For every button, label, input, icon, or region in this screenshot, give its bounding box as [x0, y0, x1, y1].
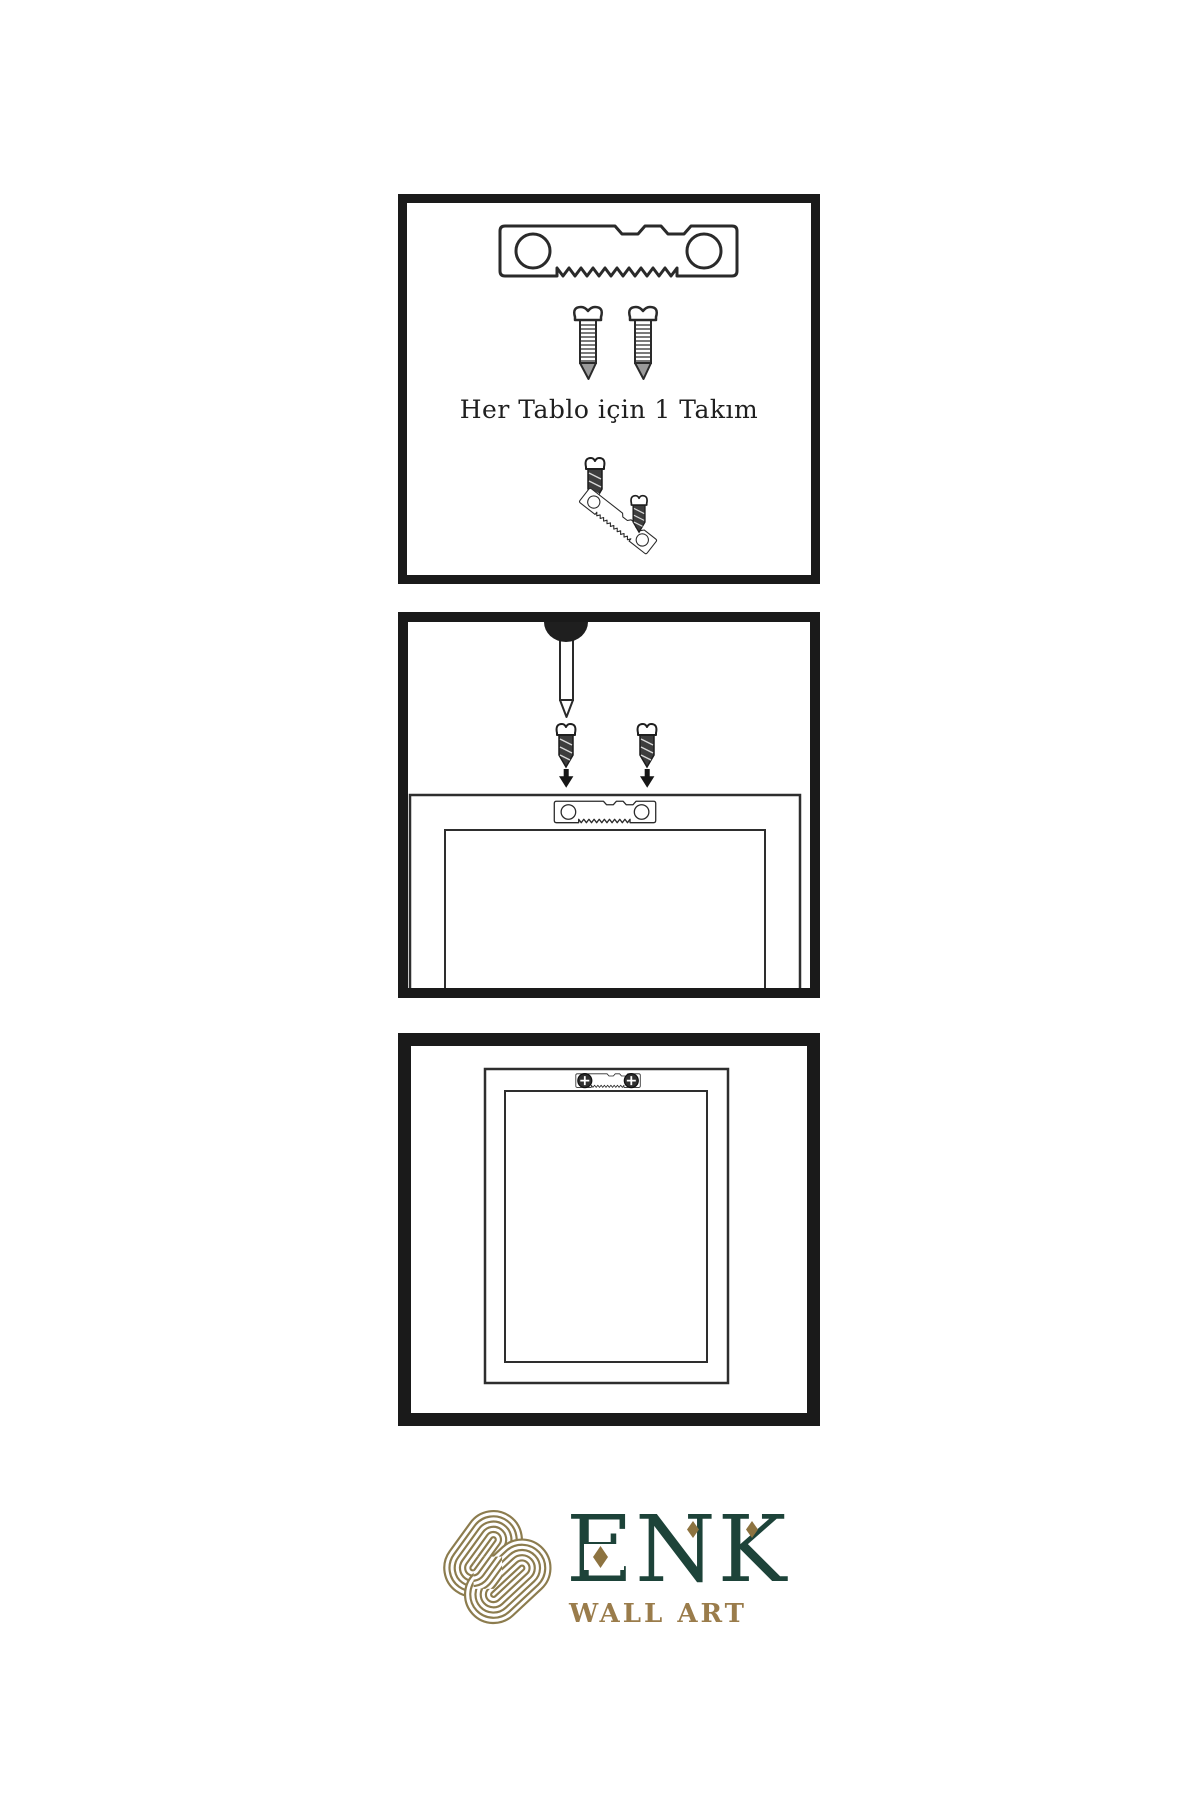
panel-installation — [398, 612, 820, 998]
panel-result — [398, 1033, 820, 1426]
arrow-down-icon — [640, 769, 654, 788]
nail-icon — [544, 622, 588, 717]
brand-subtitle: WALL ART — [569, 1599, 747, 1629]
screw-icon — [574, 307, 602, 379]
panel-hardware-kit: Her Tablo için 1 Takım — [398, 194, 820, 584]
sawtooth-hanger-icon — [554, 801, 655, 822]
frame-back-outline — [410, 795, 800, 988]
kit-caption: Her Tablo için 1 Takım — [407, 395, 811, 424]
frame-inner-outline — [505, 1091, 707, 1362]
frame-inner-outline — [445, 830, 765, 988]
arrow-down-icon — [559, 769, 573, 788]
screw-head-icon — [624, 1074, 638, 1088]
page-background: Her Tablo için 1 Takım — [0, 0, 1200, 1800]
hardware-kit-illustration — [407, 203, 811, 575]
screw-icon — [629, 307, 657, 379]
screw-icon — [557, 724, 576, 767]
frame-back-outline — [485, 1069, 728, 1383]
screw-head-icon — [578, 1074, 592, 1088]
screw-icon — [638, 724, 657, 767]
knot-logo-icon — [441, 1494, 565, 1642]
sawtooth-hanger-icon — [500, 226, 737, 276]
installation-illustration — [408, 622, 810, 988]
result-illustration — [411, 1046, 805, 1413]
